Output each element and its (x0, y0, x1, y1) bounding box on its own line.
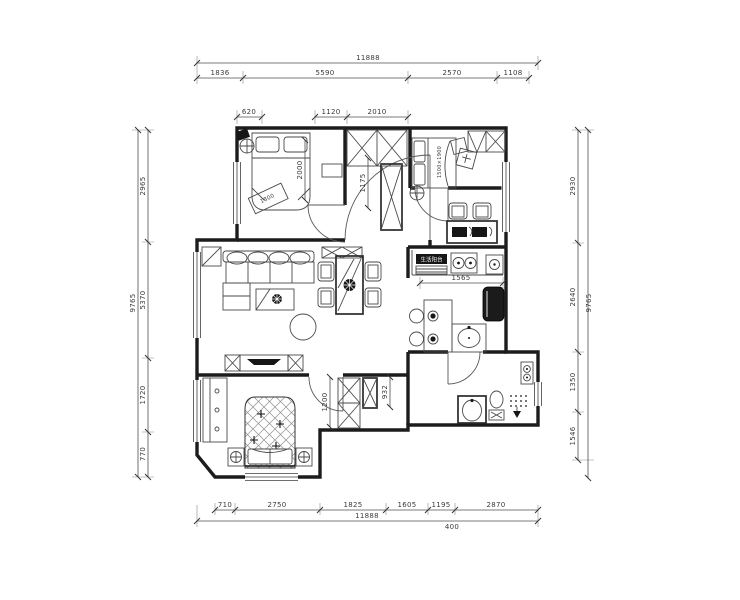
sofa (223, 251, 314, 310)
window-bedroom3-bottom (245, 473, 298, 482)
dim-bottom-seg1: 710 (218, 501, 232, 509)
floor-plan-drawing: 生活阳台 (0, 0, 740, 600)
dim-bottom-total: 11888 (355, 512, 379, 520)
washbasin-icon (458, 396, 486, 423)
washer-icon (521, 362, 533, 384)
kitchen-sink-icon (452, 324, 486, 352)
single-bed (412, 138, 456, 188)
coffee-table (256, 289, 294, 310)
dimensions-top: 11888 1836 5590 2570 1108 (197, 54, 538, 84)
dim-left-seg3: 1720 (139, 385, 147, 404)
dim-top-seg1: 1836 (210, 69, 229, 77)
nightstand (322, 164, 342, 177)
ottoman (290, 314, 316, 340)
place-setting (452, 227, 467, 237)
corner-column (202, 247, 221, 266)
kitchen-label-box: 生活阳台 (416, 254, 447, 274)
floor-plan-page: 生活阳台 (0, 0, 740, 600)
dim-closet-width: 620 (242, 108, 256, 116)
nightstand-right (296, 448, 312, 466)
window-bedroom1-left (233, 162, 242, 224)
dim-bed2-size: 1500×1900 (437, 146, 443, 178)
bedroom1 (236, 128, 342, 214)
pillow (414, 141, 425, 162)
dim-left-total: 9765 (129, 293, 137, 312)
shower-icon (510, 395, 527, 418)
bedroom2 (412, 131, 505, 188)
dim-top-seg4: 1108 (503, 69, 522, 77)
dim-right-seg3: 1350 (569, 372, 577, 391)
dim-right-total: 9765 (585, 293, 593, 312)
pillow (256, 137, 279, 152)
dim-wardrobe-b: 2010 (367, 108, 386, 116)
dim-left-seg1: 2965 (139, 176, 147, 195)
dim-wardrobe-a: 1120 (321, 108, 340, 116)
window-bedroom2-right (502, 162, 511, 232)
kitchen-table (410, 300, 453, 352)
pillow (284, 137, 307, 152)
dim-bottom-seg5: 1195 (431, 501, 450, 509)
water-heater-icon (486, 255, 503, 274)
stove-icon (451, 253, 477, 273)
dining-nook (447, 203, 497, 243)
stool (410, 309, 424, 323)
dim-top-seg3: 2570 (442, 69, 461, 77)
hall-storage (338, 378, 377, 428)
dim-top-total: 11888 (356, 54, 380, 62)
door-bathroom (448, 352, 480, 384)
dim-right-seg4: 1546 (569, 426, 577, 445)
dim-hall-width: 1175 (359, 173, 367, 192)
dim-right-seg1: 2930 (569, 176, 577, 195)
dim-top-seg2: 5590 (315, 69, 334, 77)
dim-door-clearance: 1200 (321, 392, 329, 411)
dim-bottom-offset: 400 (445, 523, 459, 531)
dim-bottom-seg3: 1825 (343, 501, 362, 509)
stool (410, 332, 424, 346)
master-bed (245, 397, 295, 468)
dim-left-seg2: 5370 (139, 290, 147, 309)
pillow (414, 164, 425, 185)
kitchen: 生活阳台 (410, 250, 505, 352)
dim-cabinet-width: 932 (381, 385, 389, 399)
corner-cabinet (468, 131, 505, 152)
tv-stand (225, 355, 303, 371)
dim-bottom-seg6: 2870 (486, 501, 505, 509)
dim-right-seg2: 2640 (569, 287, 577, 306)
dimensions-interior: 620 1120 2010 2000 1800 1500×1900 1175 1… (237, 108, 503, 427)
bathroom (458, 362, 533, 423)
dimensions-left: 9765 2965 5370 1720 770 (129, 130, 154, 477)
window-bathroom-right (534, 382, 543, 406)
dimensions-bottom: 710 2750 1825 1605 1195 2870 11888 400 (197, 501, 538, 531)
dim-counter-length: 1565 (451, 274, 470, 282)
bedroom3 (203, 378, 312, 468)
toilet-icon (489, 391, 504, 420)
fridge-icon (483, 287, 504, 321)
nightstand-left (228, 448, 244, 466)
dimensions-right: 9765 2930 2640 1350 1546 (569, 130, 594, 478)
place-setting (472, 227, 487, 237)
window-living-left (193, 252, 202, 338)
dim-bed-width: 1800 (259, 193, 275, 205)
tv-icon (247, 359, 281, 365)
living-room (202, 247, 381, 371)
kitchen-label: 生活阳台 (420, 256, 443, 264)
dim-bottom-seg2: 2750 (267, 501, 286, 509)
dining-table-living (318, 256, 381, 314)
dim-bed-length: 2000 (296, 160, 304, 179)
door-bedroom1 (308, 205, 345, 242)
window-bedroom3-left (193, 380, 202, 442)
dim-left-seg4: 770 (139, 447, 147, 461)
dim-bottom-seg4: 1605 (397, 501, 416, 509)
wardrobe (203, 378, 227, 442)
